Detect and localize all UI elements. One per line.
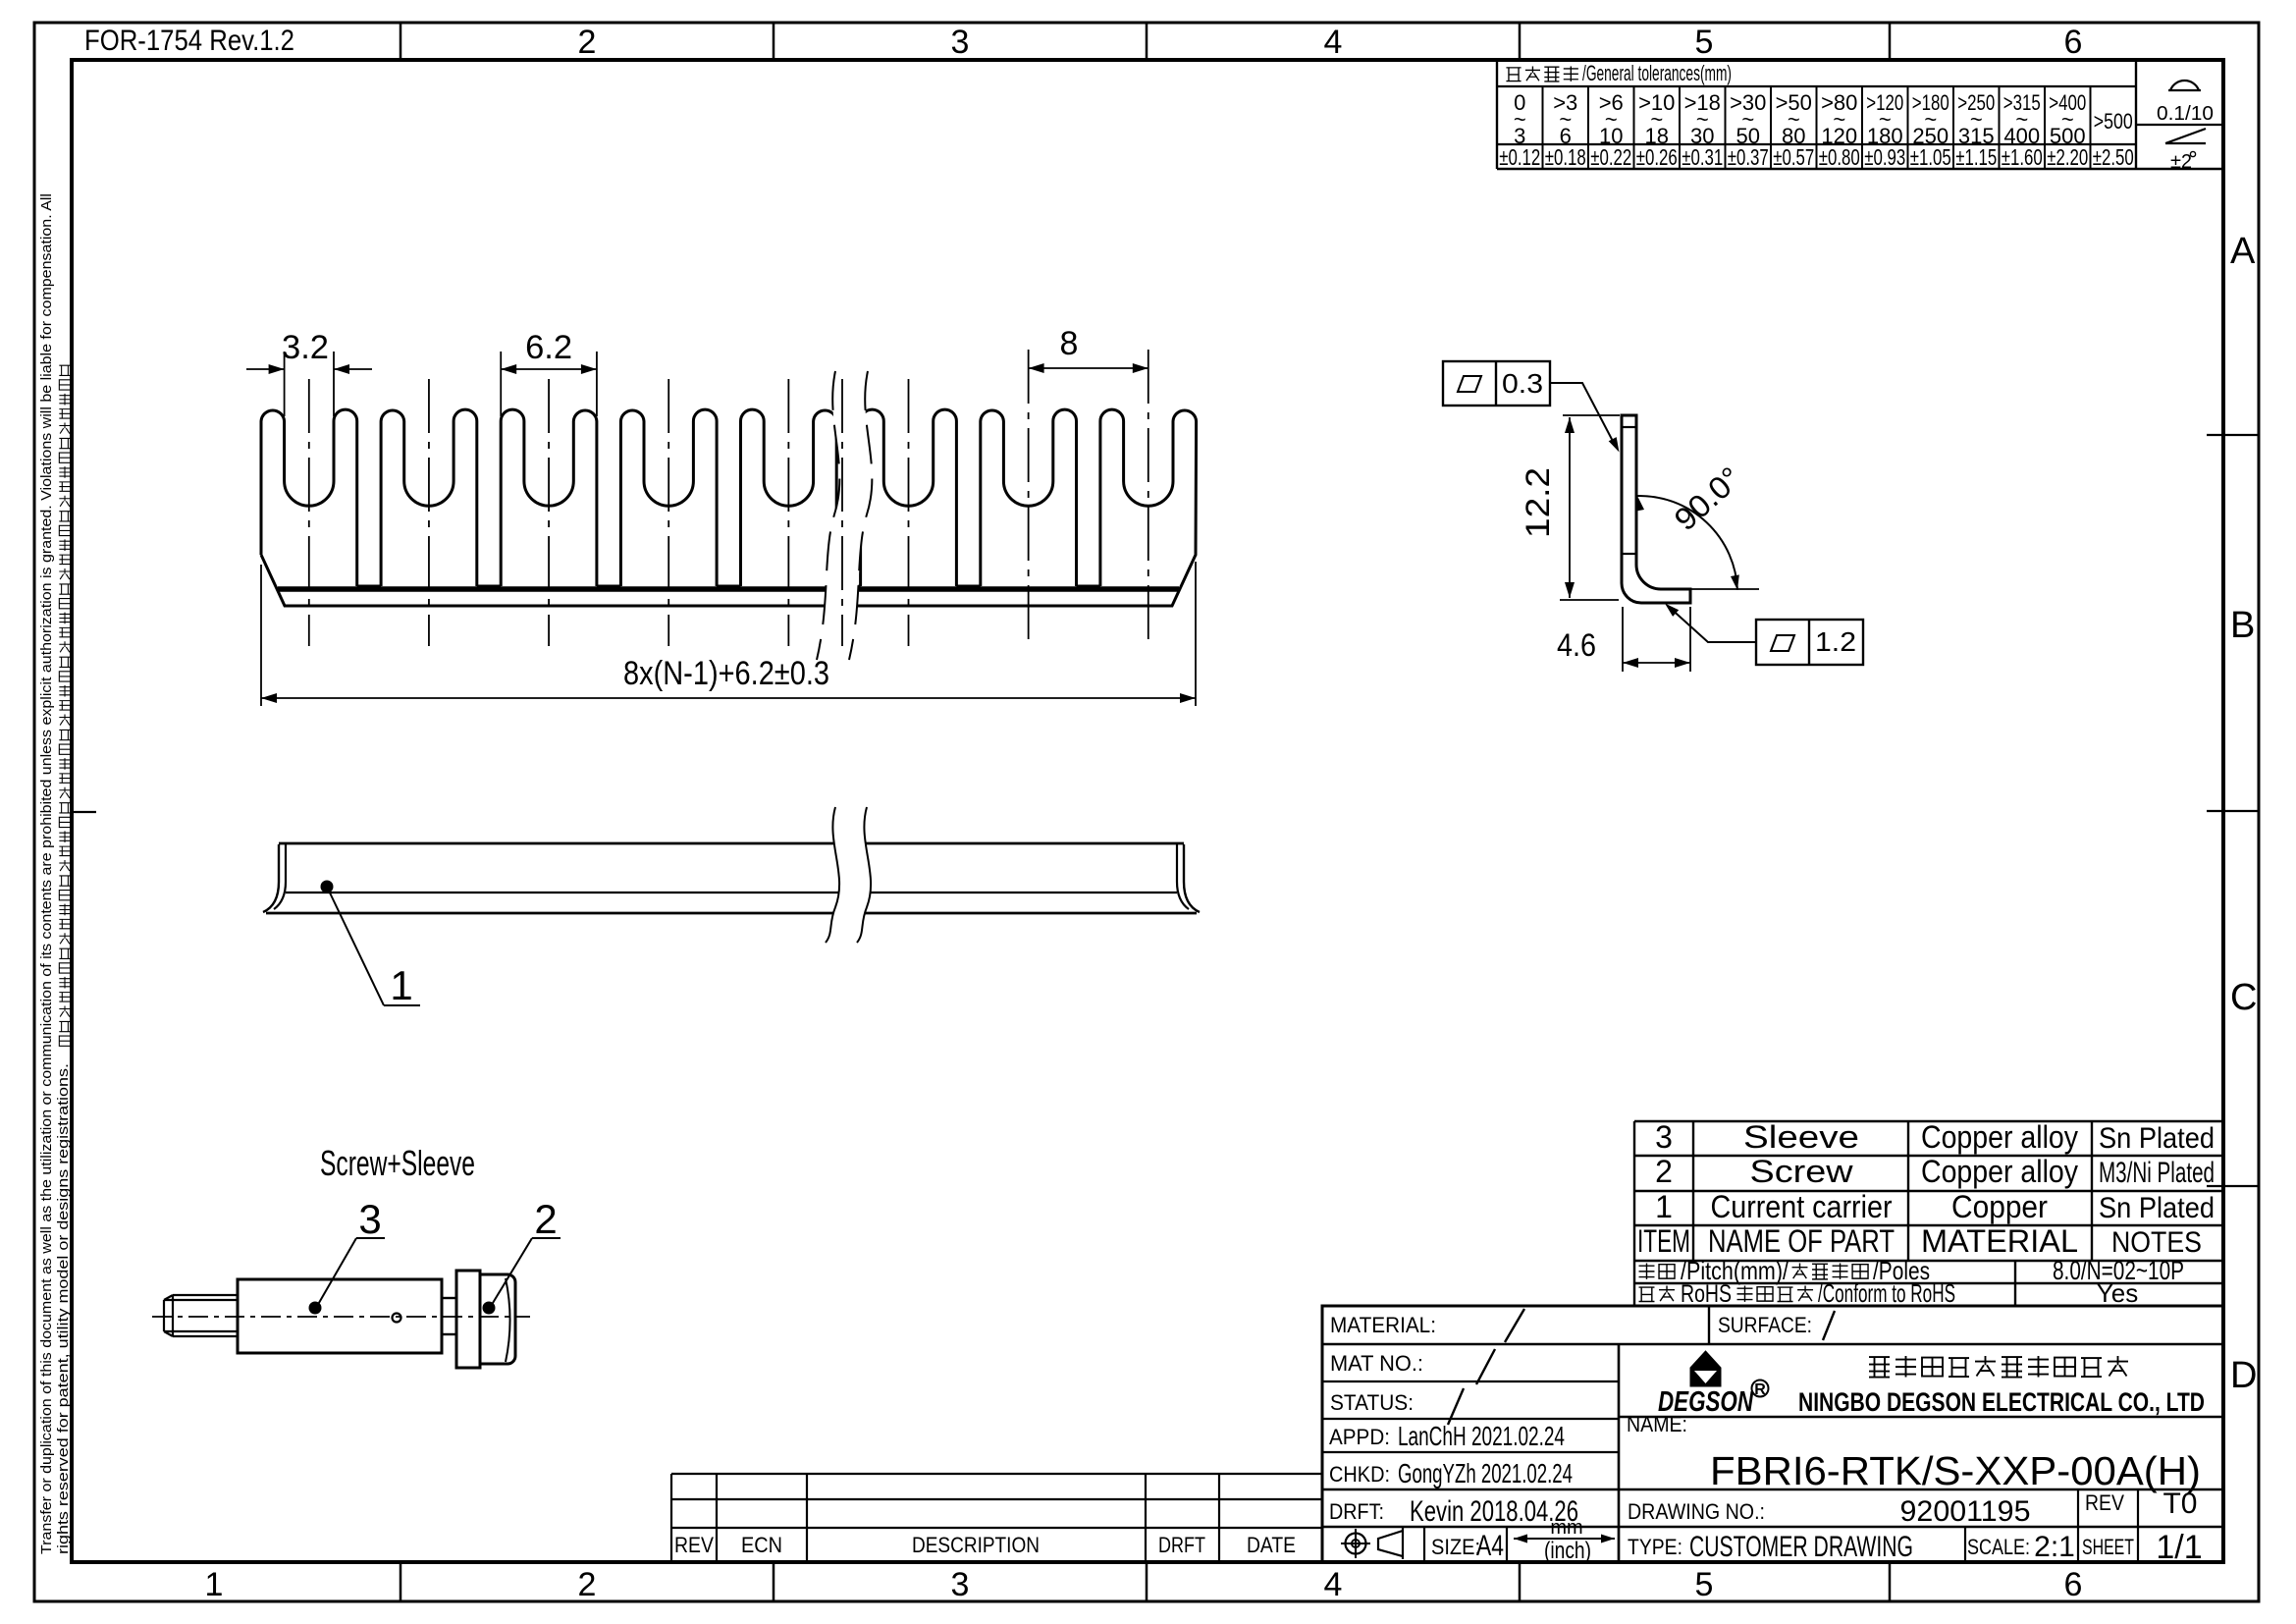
svg-text:0.3: 0.3 — [1502, 368, 1543, 399]
svg-text:B: B — [2230, 605, 2255, 646]
svg-text:Current carrier: Current carrier — [1711, 1189, 1893, 1224]
svg-text:6: 6 — [2064, 24, 2083, 61]
svg-text:2: 2 — [1655, 1154, 1673, 1189]
svg-text:M3/Ni Plated: M3/Ni Plated — [2099, 1157, 2215, 1189]
svg-text:3: 3 — [951, 1566, 970, 1603]
svg-text:3: 3 — [358, 1196, 381, 1242]
svg-text:SIZE:: SIZE: — [1431, 1535, 1480, 1559]
svg-text:Sleeve: Sleeve — [1743, 1119, 1859, 1155]
svg-text:DRAWING NO.:: DRAWING NO.: — [1628, 1499, 1765, 1524]
svg-text:3.2: 3.2 — [282, 329, 329, 366]
svg-text:2: 2 — [578, 24, 597, 61]
svg-text:±0.57: ±0.57 — [1773, 144, 1814, 170]
svg-text:STATUS:: STATUS: — [1330, 1390, 1414, 1415]
svg-text:Copper alloy: Copper alloy — [1921, 1119, 2078, 1155]
svg-text:SCALE:: SCALE: — [1967, 1535, 2030, 1559]
svg-text:Yes: Yes — [2097, 1278, 2138, 1308]
svg-text:REV: REV — [674, 1533, 714, 1557]
svg-text:1/1: 1/1 — [2156, 1529, 2202, 1566]
svg-text:Copper: Copper — [1951, 1189, 2048, 1224]
svg-text:±1.05: ±1.05 — [1910, 144, 1951, 170]
svg-text:NAME:: NAME: — [1627, 1412, 1687, 1436]
svg-text:DRFT:: DRFT: — [1329, 1499, 1384, 1524]
svg-text:RoHS: RoHS — [1681, 1280, 1732, 1308]
svg-text:Copper alloy: Copper alloy — [1921, 1154, 2078, 1189]
svg-text:±0.93: ±0.93 — [1864, 144, 1905, 170]
svg-text:DATE: DATE — [1247, 1533, 1296, 1557]
svg-text:3: 3 — [1655, 1119, 1673, 1155]
svg-text:C: C — [2230, 977, 2257, 1018]
svg-text:Sn Plated: Sn Plated — [2099, 1192, 2215, 1224]
svg-text:±0.80: ±0.80 — [1819, 144, 1860, 170]
svg-text:SURFACE:: SURFACE: — [1718, 1313, 1812, 1337]
svg-text:MATERIAL:: MATERIAL: — [1330, 1313, 1436, 1337]
svg-text:D: D — [2230, 1355, 2257, 1396]
svg-text:4: 4 — [1324, 24, 1343, 61]
svg-text:±0.12: ±0.12 — [1499, 144, 1540, 170]
svg-text:mm: mm — [1550, 1517, 1582, 1539]
svg-text:1: 1 — [1655, 1189, 1673, 1224]
svg-text:±0.18: ±0.18 — [1545, 144, 1586, 170]
svg-text:CHKD:: CHKD: — [1329, 1462, 1390, 1487]
svg-text:Screw: Screw — [1750, 1154, 1854, 1189]
svg-text:Transfer or duplication of thi: Transfer or duplication of this document… — [38, 193, 55, 1554]
svg-text:A4: A4 — [1476, 1530, 1504, 1562]
svg-text:T0: T0 — [2163, 1488, 2197, 1520]
svg-text:2: 2 — [534, 1196, 557, 1242]
svg-text:±0.26: ±0.26 — [1636, 144, 1678, 170]
svg-text:4.6: 4.6 — [1557, 627, 1596, 663]
svg-text:2:1: 2:1 — [2034, 1531, 2075, 1563]
svg-text:±2: ±2 — [2170, 151, 2192, 173]
svg-text:±1.15: ±1.15 — [1955, 144, 1997, 170]
svg-text:0.1/10: 0.1/10 — [2157, 103, 2214, 125]
svg-text:±1.60: ±1.60 — [2002, 144, 2043, 170]
svg-text:GongYZh 2021.02.24: GongYZh 2021.02.24 — [1398, 1458, 1573, 1489]
svg-text:±0.22: ±0.22 — [1590, 144, 1631, 170]
svg-text:92001195: 92001195 — [1900, 1495, 2031, 1528]
svg-text:1: 1 — [205, 1566, 224, 1603]
svg-text:(inch): (inch) — [1544, 1538, 1591, 1564]
svg-text:R: R — [1754, 1381, 1766, 1398]
svg-text:NOTES: NOTES — [2111, 1226, 2202, 1259]
svg-text:±0.37: ±0.37 — [1728, 144, 1769, 170]
svg-text:/Conform to RoHS: /Conform to RoHS — [1818, 1278, 1955, 1308]
svg-text:NINGBO DEGSON ELECTRICAL CO.,: NINGBO DEGSON ELECTRICAL CO., LTD — [1798, 1387, 2205, 1417]
svg-text:6: 6 — [2064, 1566, 2083, 1603]
svg-text:rights reserved for patent, ut: rights reserved for patent, utility mode… — [55, 1063, 72, 1554]
svg-text:FBRI6-RTK/S-XXP-00A(H): FBRI6-RTK/S-XXP-00A(H) — [1710, 1448, 2201, 1493]
svg-text:5: 5 — [1695, 24, 1714, 61]
svg-text:FOR-1754 Rev.1.2: FOR-1754 Rev.1.2 — [84, 25, 294, 57]
svg-text:Sn Plated: Sn Plated — [2099, 1122, 2215, 1155]
svg-text:DESCRIPTION: DESCRIPTION — [912, 1533, 1040, 1557]
svg-text:>500: >500 — [2094, 109, 2133, 134]
svg-text:CUSTOMER DRAWING: CUSTOMER DRAWING — [1689, 1531, 1913, 1563]
svg-text:5: 5 — [1695, 1566, 1714, 1603]
svg-text:NAME OF PART: NAME OF PART — [1708, 1223, 1895, 1259]
svg-text:Screw+Sleeve: Screw+Sleeve — [320, 1143, 475, 1183]
svg-text:ITEM: ITEM — [1637, 1223, 1690, 1259]
svg-text:MATERIAL: MATERIAL — [1921, 1223, 2078, 1259]
svg-text:APPD:: APPD: — [1329, 1425, 1390, 1449]
svg-text:MAT NO.:: MAT NO.: — [1330, 1351, 1423, 1376]
svg-text:12.2: 12.2 — [1520, 467, 1557, 538]
svg-text:3: 3 — [951, 24, 970, 61]
svg-text:ECN: ECN — [741, 1533, 782, 1557]
svg-text:LanChH 2021.02.24: LanChH 2021.02.24 — [1398, 1421, 1565, 1451]
svg-text:1.2: 1.2 — [1815, 626, 1856, 657]
svg-text:6.2: 6.2 — [525, 329, 572, 366]
svg-text:±2.20: ±2.20 — [2047, 144, 2088, 170]
svg-text:±0.31: ±0.31 — [1682, 144, 1723, 170]
svg-text:/General tolerances(mm): /General tolerances(mm) — [1582, 61, 1732, 85]
svg-text:2: 2 — [578, 1566, 597, 1603]
svg-text:REV: REV — [2085, 1490, 2124, 1515]
svg-text:8x(N-1)+6.2±0.3: 8x(N-1)+6.2±0.3 — [623, 655, 829, 692]
svg-text:1: 1 — [390, 962, 412, 1008]
svg-text:±2.50: ±2.50 — [2093, 144, 2134, 170]
svg-text:SHEET: SHEET — [2082, 1535, 2134, 1559]
svg-text:TYPE:: TYPE: — [1628, 1535, 1682, 1559]
svg-text:A: A — [2230, 231, 2256, 272]
svg-text:8: 8 — [1060, 325, 1079, 362]
svg-text:4: 4 — [1324, 1566, 1343, 1603]
svg-text:DRFT: DRFT — [1158, 1533, 1205, 1557]
